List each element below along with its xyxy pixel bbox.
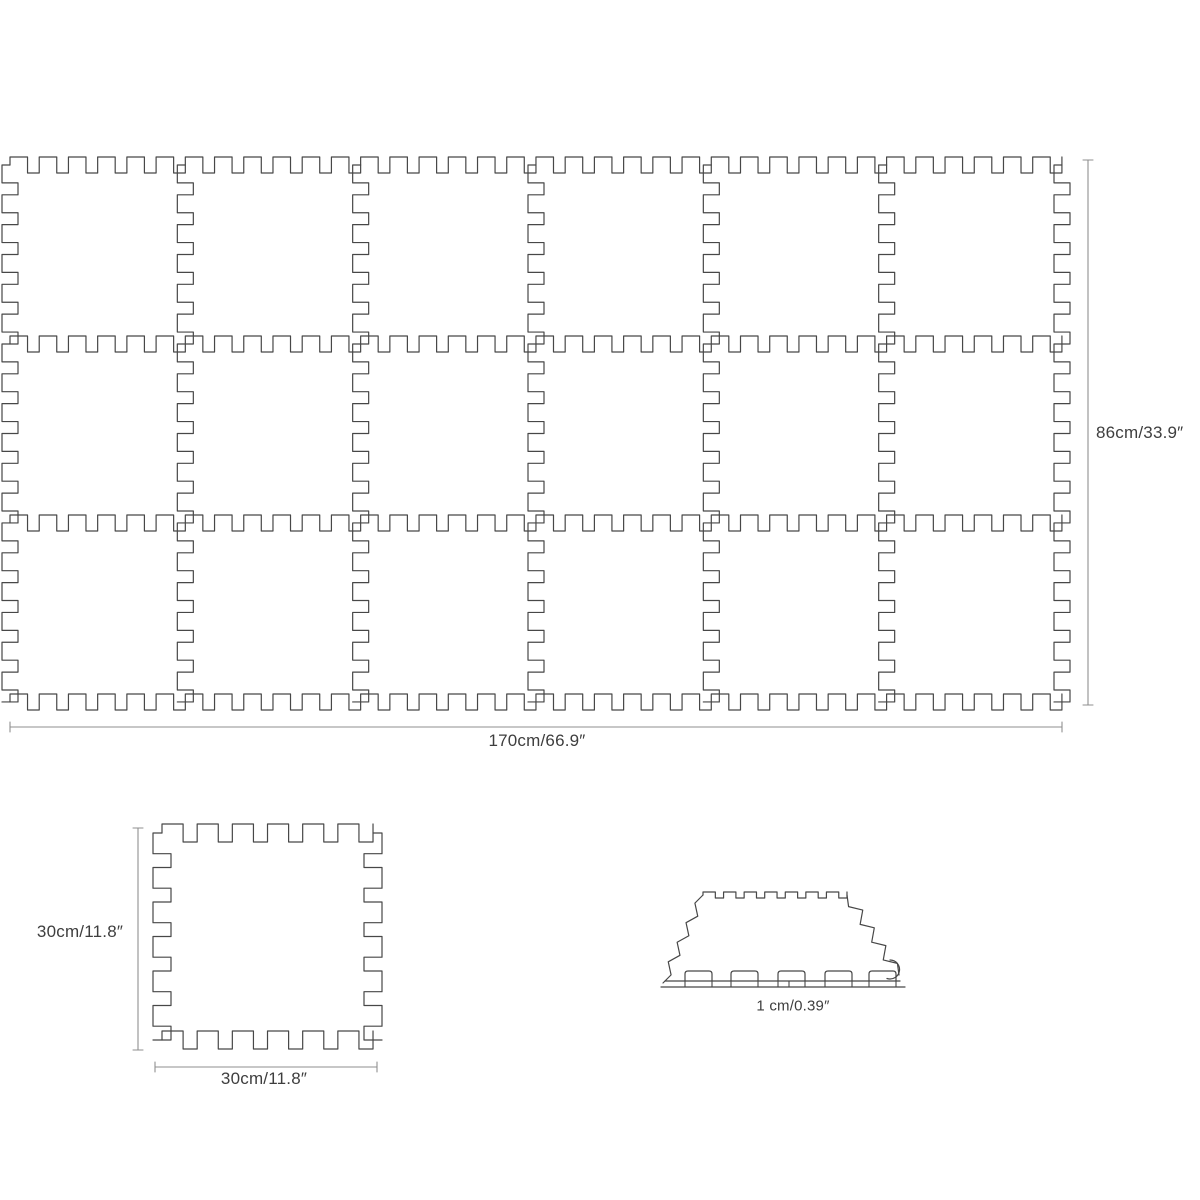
sideview-tooth-connector [825, 981, 852, 987]
diagram-stage: 86cm/33.9″ 170cm/66.9″ 30cm/11.8″ 30cm/1… [0, 0, 1200, 1200]
sideview-tooth [685, 971, 712, 981]
sideview-tooth-connector [778, 981, 805, 987]
sideview-right-edge [847, 895, 899, 975]
grid-vertical-seam [879, 165, 895, 702]
grid-vertical-seam [528, 165, 544, 702]
grid-height-dimension-line [1083, 160, 1093, 705]
mat-diagram-svg [0, 0, 1200, 1200]
grid-vertical-seam [703, 165, 719, 702]
grid-width-label: 170cm/66.9″ [488, 731, 585, 751]
tile-top-edge [162, 824, 373, 842]
sideview-tooth [825, 971, 852, 981]
sideview-tooth-connector [869, 981, 896, 987]
tile-bottom-edge [162, 1031, 373, 1049]
tile-height-dimension-line [133, 828, 143, 1050]
tile-right-edge [364, 833, 382, 1040]
tile-height-label: 30cm/11.8″ [37, 922, 123, 942]
sideview-tooth-connector [685, 981, 712, 987]
sideview-tooth-connector [731, 981, 758, 987]
grid-height-label: 86cm/33.9″ [1096, 423, 1183, 443]
sideview-tooth [778, 971, 805, 981]
sideview-tooth [731, 971, 758, 981]
sideview-left-edge [663, 895, 703, 983]
thickness-label: 1 cm/0.39″ [756, 998, 829, 1015]
grid-vertical-seam [2, 165, 18, 702]
tile-left-edge [153, 833, 171, 1040]
sideview-far-edge [703, 892, 847, 898]
grid-vertical-seam [177, 165, 193, 702]
grid-vertical-seam [353, 165, 369, 702]
thickness-marker [783, 981, 795, 987]
tile-width-label: 30cm/11.8″ [221, 1069, 307, 1089]
grid-vertical-seam [1054, 165, 1070, 702]
sideview-tooth [869, 971, 896, 981]
